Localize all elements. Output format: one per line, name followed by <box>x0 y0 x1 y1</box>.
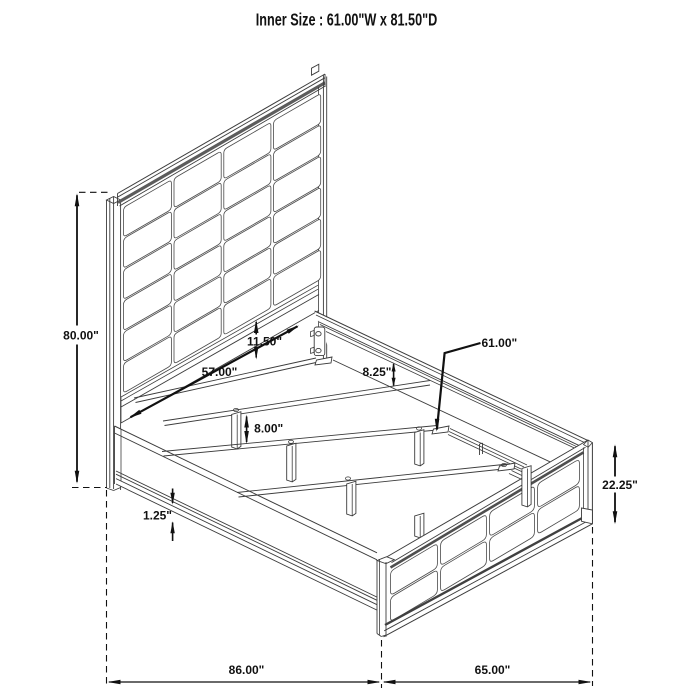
svg-text:1.25": 1.25" <box>143 509 172 523</box>
svg-text:61.00": 61.00" <box>482 336 518 350</box>
svg-text:22.25": 22.25" <box>602 478 638 492</box>
svg-text:86.00": 86.00" <box>229 663 265 677</box>
svg-text:57.00": 57.00" <box>202 365 238 379</box>
svg-text:65.00": 65.00" <box>475 663 511 677</box>
svg-text:8.00": 8.00" <box>254 422 283 436</box>
svg-text:8.25": 8.25" <box>362 365 391 379</box>
svg-text:Inner Size : 61.00"W x 81.50"D: Inner Size : 61.00"W x 81.50"D <box>256 9 438 29</box>
svg-text:80.00": 80.00" <box>63 328 99 342</box>
